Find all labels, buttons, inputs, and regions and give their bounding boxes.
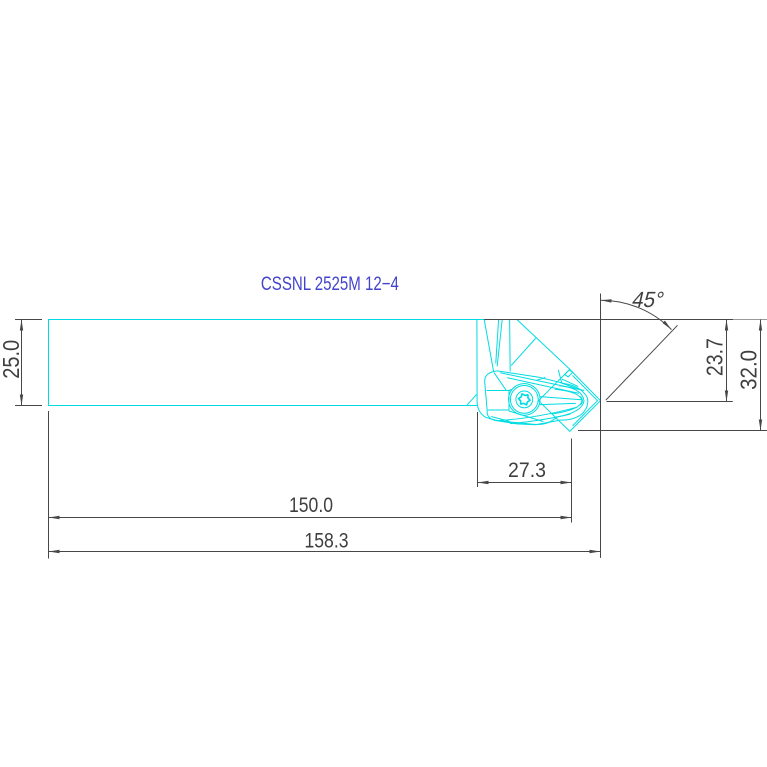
svg-text:23.7: 23.7 xyxy=(701,338,727,376)
svg-text:150.0: 150.0 xyxy=(289,493,333,517)
svg-text:32.0: 32.0 xyxy=(736,350,762,390)
svg-text:45°: 45° xyxy=(630,287,667,312)
svg-text:27.3: 27.3 xyxy=(508,458,546,482)
svg-text:CSSNL 2525M 12−4: CSSNL 2525M 12−4 xyxy=(261,273,399,295)
svg-text:25.0: 25.0 xyxy=(0,340,24,379)
svg-text:158.3: 158.3 xyxy=(305,529,349,553)
